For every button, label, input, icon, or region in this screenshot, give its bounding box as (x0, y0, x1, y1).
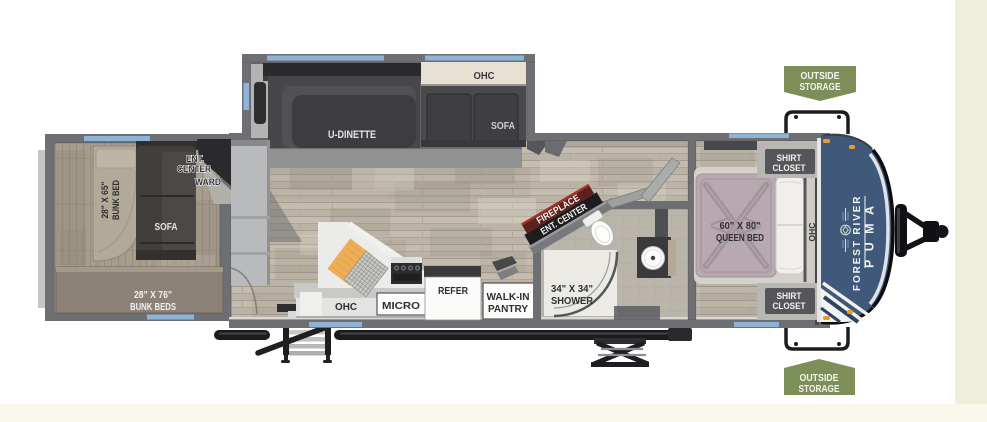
svg-text:SOFA: SOFA (491, 120, 515, 132)
svg-text:FOREST RIVER: FOREST RIVER (852, 196, 863, 291)
svg-text:PUMA: PUMA (863, 200, 877, 268)
svg-text:OUTSIDE: OUTSIDE (801, 71, 840, 82)
svg-text:MICRO: MICRO (382, 300, 420, 312)
svg-text:STORAGE: STORAGE (800, 82, 841, 93)
svg-text:CENTER: CENTER (177, 164, 211, 175)
svg-text:OHC: OHC (335, 301, 357, 313)
svg-text:28" X 65": 28" X 65" (100, 182, 111, 219)
svg-text:BUNK BED: BUNK BED (111, 180, 122, 220)
svg-text:WALK-IN: WALK-IN (487, 291, 530, 303)
svg-text:34" X 34": 34" X 34" (551, 283, 593, 295)
svg-text:28" X 76": 28" X 76" (134, 290, 172, 301)
svg-text:60" X 80": 60" X 80" (720, 221, 761, 232)
svg-text:SOFA: SOFA (155, 222, 178, 233)
svg-text:PANTRY: PANTRY (488, 303, 528, 315)
svg-text:SHOWER: SHOWER (551, 295, 593, 307)
svg-text:REFER: REFER (438, 285, 468, 297)
svg-text:OUTSIDE: OUTSIDE (800, 373, 839, 384)
svg-text:QUEEN BED: QUEEN BED (716, 233, 764, 244)
svg-text:CLOSET: CLOSET (773, 163, 806, 174)
svg-text:OHC: OHC (474, 70, 495, 82)
svg-text:U-DINETTE: U-DINETTE (328, 129, 376, 141)
svg-text:CLOSET: CLOSET (773, 301, 806, 312)
svg-text:BUNK BEDS: BUNK BEDS (130, 302, 176, 313)
svg-text:WARD: WARD (195, 177, 221, 188)
svg-text:STORAGE: STORAGE (799, 384, 840, 395)
